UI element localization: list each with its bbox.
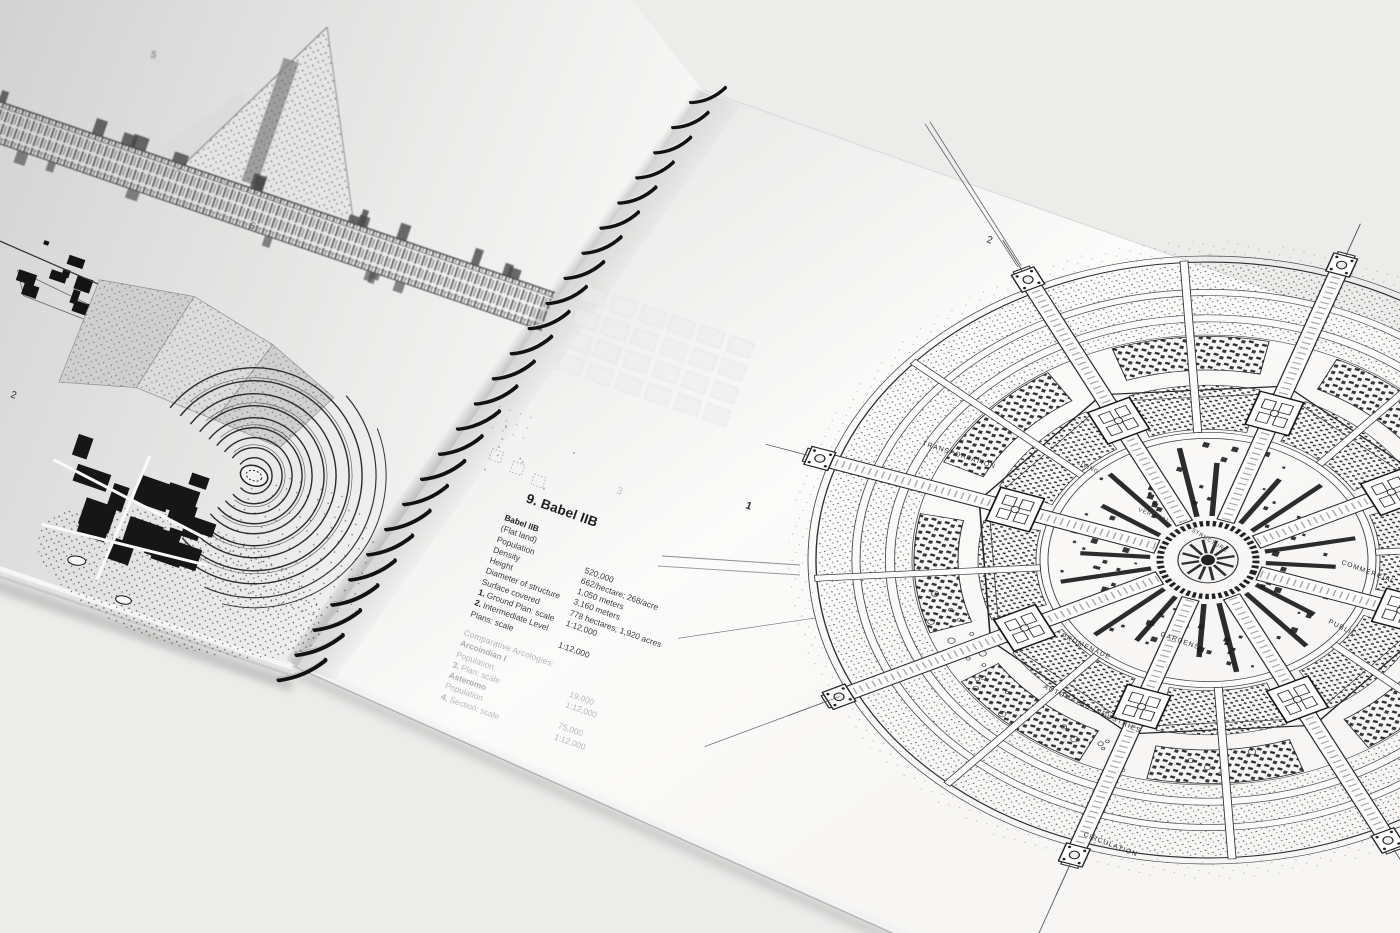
book-photo-scene: TRANSPORTATION PROMENADE GARDENS PUBLIC … bbox=[0, 0, 1400, 933]
